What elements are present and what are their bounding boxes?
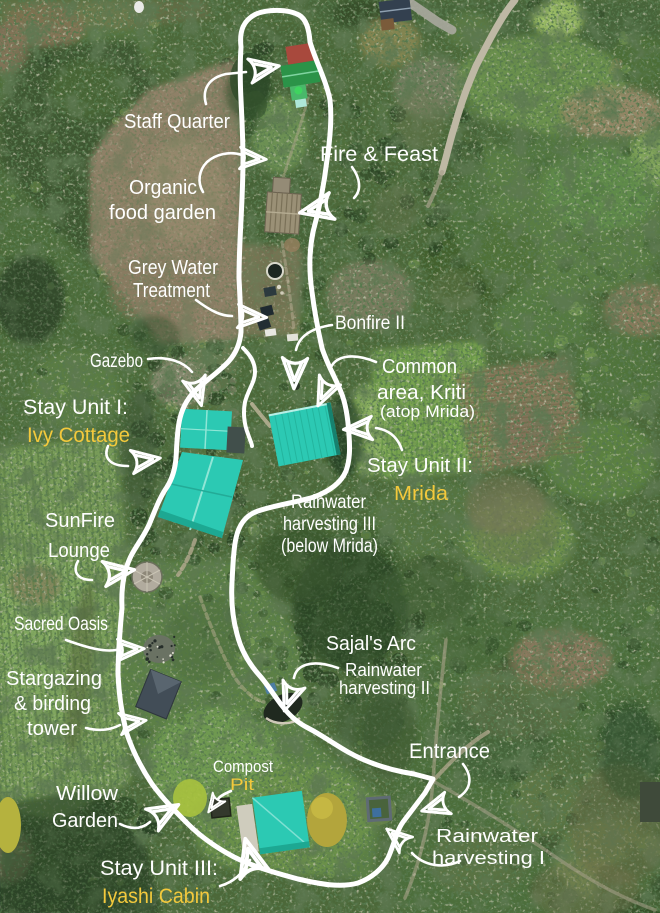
svg-text:Stay Unit III:: Stay Unit III:: [100, 857, 218, 880]
svg-text:(atop Mrida): (atop Mrida): [380, 402, 475, 421]
svg-text:& birding: & birding: [14, 693, 91, 715]
svg-text:Treatment: Treatment: [133, 280, 210, 302]
svg-text:Garden: Garden: [52, 810, 118, 832]
svg-text:Staff Quarter: Staff Quarter: [124, 111, 230, 133]
svg-text:Rainwater: Rainwater: [436, 826, 538, 846]
svg-text:Compost: Compost: [213, 757, 273, 776]
svg-text:Common: Common: [382, 356, 457, 378]
svg-text:Stay Unit I:: Stay Unit I:: [23, 396, 128, 419]
svg-text:Pit: Pit: [230, 775, 254, 794]
svg-text:Stargazing: Stargazing: [6, 668, 102, 690]
svg-text:Ivy Cottage: Ivy Cottage: [27, 424, 130, 447]
svg-text:(below Mrida): (below Mrida): [281, 536, 378, 557]
svg-text:Gazebo: Gazebo: [90, 351, 143, 372]
svg-text:Entrance: Entrance: [409, 740, 490, 763]
svg-text:Mrida: Mrida: [394, 483, 449, 505]
svg-text:Rainwater: Rainwater: [345, 660, 422, 680]
svg-text:Sacred Oasis: Sacred Oasis: [14, 614, 108, 635]
svg-text:Sajal's Arc: Sajal's Arc: [326, 633, 416, 655]
svg-text:tower: tower: [27, 718, 77, 740]
svg-text:Grey Water: Grey Water: [128, 257, 218, 279]
svg-text:SunFire: SunFire: [45, 510, 115, 532]
svg-text:food garden: food garden: [109, 202, 216, 224]
svg-text:harvesting II: harvesting II: [339, 678, 430, 698]
svg-text:Fire & Feast: Fire & Feast: [320, 143, 438, 166]
svg-text:Organic: Organic: [129, 177, 197, 199]
svg-text:Bonfire II: Bonfire II: [335, 313, 405, 334]
svg-text:area, Kriti: area, Kriti: [377, 382, 466, 404]
svg-text:Stay Unit II:: Stay Unit II:: [367, 455, 473, 477]
svg-text:Willow: Willow: [56, 783, 119, 805]
svg-text:harvesting III: harvesting III: [283, 514, 376, 535]
svg-text:Rainwater: Rainwater: [291, 492, 367, 513]
svg-text:harvesting I: harvesting I: [432, 848, 545, 868]
svg-text:Iyashi Cabin: Iyashi Cabin: [102, 885, 210, 908]
svg-text:Lounge: Lounge: [48, 540, 110, 562]
